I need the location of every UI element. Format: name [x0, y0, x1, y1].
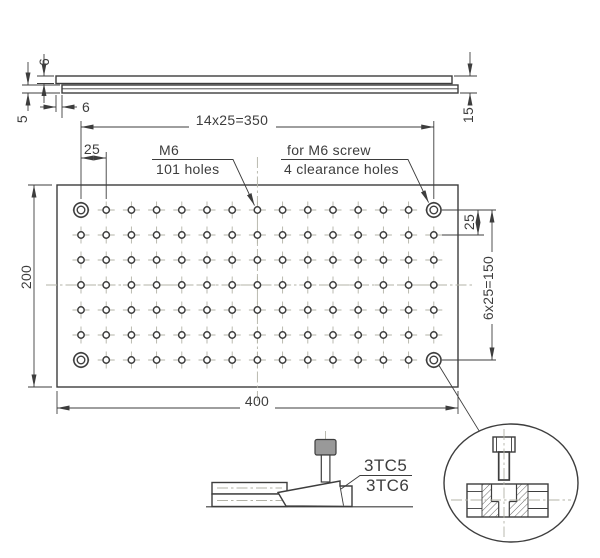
- m6-hole: [431, 307, 437, 313]
- m6-hole: [254, 282, 260, 288]
- m6-hole: [305, 257, 311, 263]
- m6-hole: [405, 207, 411, 213]
- m6-hole: [78, 257, 84, 263]
- m6-hole: [305, 332, 311, 338]
- dim-plate-height-label: 200: [18, 265, 34, 289]
- m6-hole: [305, 232, 311, 238]
- dim-row-pitch-label: 25: [461, 214, 477, 230]
- m6-hole: [179, 257, 185, 263]
- m6-hole: [305, 307, 311, 313]
- detail-leader: [439, 366, 479, 431]
- dimension-plate-height: 200: [18, 185, 52, 387]
- clamp-assembly: 3TC5 3TC6: [206, 431, 413, 507]
- dim-total-height-label: 15: [460, 107, 476, 123]
- detail-view: [444, 424, 578, 542]
- part-label-lower: 3TC6: [366, 476, 409, 495]
- m6-hole: [380, 257, 386, 263]
- m6-hole: [355, 282, 361, 288]
- m6-hole: [204, 207, 210, 213]
- m6-hole: [405, 307, 411, 313]
- screw-shaft: [321, 455, 330, 482]
- m6-hole: [355, 207, 361, 213]
- drawing-page: 6 5 6 15: [0, 0, 600, 553]
- m6-hole: [78, 282, 84, 288]
- m6-hole: [179, 282, 185, 288]
- m6-hole: [204, 332, 210, 338]
- m6-hole: [229, 207, 235, 213]
- plate-top-view: 14x25=350 25 M6 101 holes for M6 screw 4…: [18, 112, 496, 431]
- m6-hole: [405, 257, 411, 263]
- m6-hole: [330, 307, 336, 313]
- m6-hole: [330, 232, 336, 238]
- note-thread-line1: M6: [159, 142, 179, 158]
- m6-hole: [380, 232, 386, 238]
- m6-hole: [405, 332, 411, 338]
- dimension-top-thickness: 6: [36, 54, 54, 103]
- m6-hole: [380, 282, 386, 288]
- m6-hole: [179, 207, 185, 213]
- m6-hole: [330, 207, 336, 213]
- dim-edge-margin-label: 25: [84, 141, 100, 157]
- m6-hole: [305, 357, 311, 363]
- technical-drawing-breadboard: 6 5 6 15: [0, 0, 600, 553]
- part-label-upper: 3TC5: [364, 456, 407, 475]
- m6-hole: [103, 357, 109, 363]
- m6-hole: [229, 357, 235, 363]
- m6-hole: [380, 307, 386, 313]
- m6-hole: [153, 257, 159, 263]
- note-clearance-line1: for M6 screw: [287, 142, 371, 158]
- dim-hole-span-x-label: 14x25=350: [196, 112, 268, 128]
- section-plate: [467, 484, 548, 517]
- dimension-plate-width: 400: [57, 391, 458, 414]
- m6-hole: [153, 232, 159, 238]
- m6-hole: [179, 232, 185, 238]
- m6-hole: [305, 207, 311, 213]
- m6-hole: [279, 307, 285, 313]
- m6-hole: [254, 307, 260, 313]
- note-thread-line2: 101 holes: [156, 161, 219, 177]
- m6-hole: [78, 332, 84, 338]
- clamp-wedge: [278, 481, 352, 507]
- dim-top-thickness-label: 6: [36, 58, 52, 66]
- m6-hole: [103, 257, 109, 263]
- m6-hole: [305, 282, 311, 288]
- m6-hole: [431, 282, 437, 288]
- m6-hole: [380, 332, 386, 338]
- clamp-screw: [315, 431, 336, 482]
- m6-hole: [204, 257, 210, 263]
- m6-hole: [153, 207, 159, 213]
- m6-hole: [229, 282, 235, 288]
- dim-plate-width-label: 400: [245, 393, 269, 409]
- m6-hole: [179, 307, 185, 313]
- clearance-hole-bore: [430, 206, 438, 214]
- dimension-edge-offset: 6: [40, 95, 90, 118]
- clearance-hole-bore: [77, 206, 85, 214]
- m6-hole: [229, 332, 235, 338]
- m6-hole: [103, 332, 109, 338]
- m6-hole: [204, 357, 210, 363]
- clearance-hole-bore: [77, 356, 85, 364]
- m6-hole: [355, 257, 361, 263]
- m6-hole: [279, 207, 285, 213]
- m6-hole: [279, 232, 285, 238]
- m6-hole: [380, 207, 386, 213]
- m6-hole: [78, 307, 84, 313]
- m6-hole: [204, 282, 210, 288]
- m6-hole: [330, 332, 336, 338]
- m6-hole: [103, 282, 109, 288]
- m6-hole: [204, 307, 210, 313]
- dim-bottom-thickness-label: 5: [14, 115, 30, 123]
- m6-hole: [153, 282, 159, 288]
- m6-hole: [103, 232, 109, 238]
- m6-hole: [128, 207, 134, 213]
- m6-hole: [431, 257, 437, 263]
- m6-hole: [179, 357, 185, 363]
- m6-hole: [355, 307, 361, 313]
- dim-edge-offset-label: 6: [82, 99, 90, 115]
- m6-hole: [229, 232, 235, 238]
- m6-hole: [254, 207, 260, 213]
- m6-hole: [405, 357, 411, 363]
- m6-hole: [279, 282, 285, 288]
- m6-hole: [103, 307, 109, 313]
- m6-hole: [279, 357, 285, 363]
- screw-head: [315, 440, 336, 456]
- m6-hole: [179, 332, 185, 338]
- m6-hole: [153, 307, 159, 313]
- m6-hole: [153, 357, 159, 363]
- dim-hole-span-y-label: 6x25=150: [480, 256, 496, 320]
- m6-hole: [355, 332, 361, 338]
- m6-hole: [330, 357, 336, 363]
- side-view-top-plate: [56, 76, 452, 84]
- m6-hole: [254, 357, 260, 363]
- dimension-bottom-thickness: 5: [14, 62, 60, 123]
- m6-hole: [128, 332, 134, 338]
- m6-hole: [431, 332, 437, 338]
- m6-hole: [355, 232, 361, 238]
- m6-hole: [279, 332, 285, 338]
- m6-hole: [355, 357, 361, 363]
- m6-hole: [128, 257, 134, 263]
- m6-hole: [279, 257, 285, 263]
- m6-hole: [153, 332, 159, 338]
- m6-hole: [78, 232, 84, 238]
- m6-hole: [128, 282, 134, 288]
- m6-hole: [229, 257, 235, 263]
- m6-hole: [431, 232, 437, 238]
- m6-hole: [128, 307, 134, 313]
- m6-hole: [405, 282, 411, 288]
- m6-hole: [128, 232, 134, 238]
- m6-hole: [254, 257, 260, 263]
- m6-hole: [330, 257, 336, 263]
- clearance-hole-bore: [430, 356, 438, 364]
- m6-hole: [229, 307, 235, 313]
- m6-hole: [204, 232, 210, 238]
- note-clearance-line2: 4 clearance holes: [284, 161, 399, 177]
- m6-hole: [128, 357, 134, 363]
- m6-hole: [254, 332, 260, 338]
- m6-hole: [380, 357, 386, 363]
- m6-hole: [254, 232, 260, 238]
- m6-hole: [103, 207, 109, 213]
- m6-hole: [405, 232, 411, 238]
- m6-hole: [330, 282, 336, 288]
